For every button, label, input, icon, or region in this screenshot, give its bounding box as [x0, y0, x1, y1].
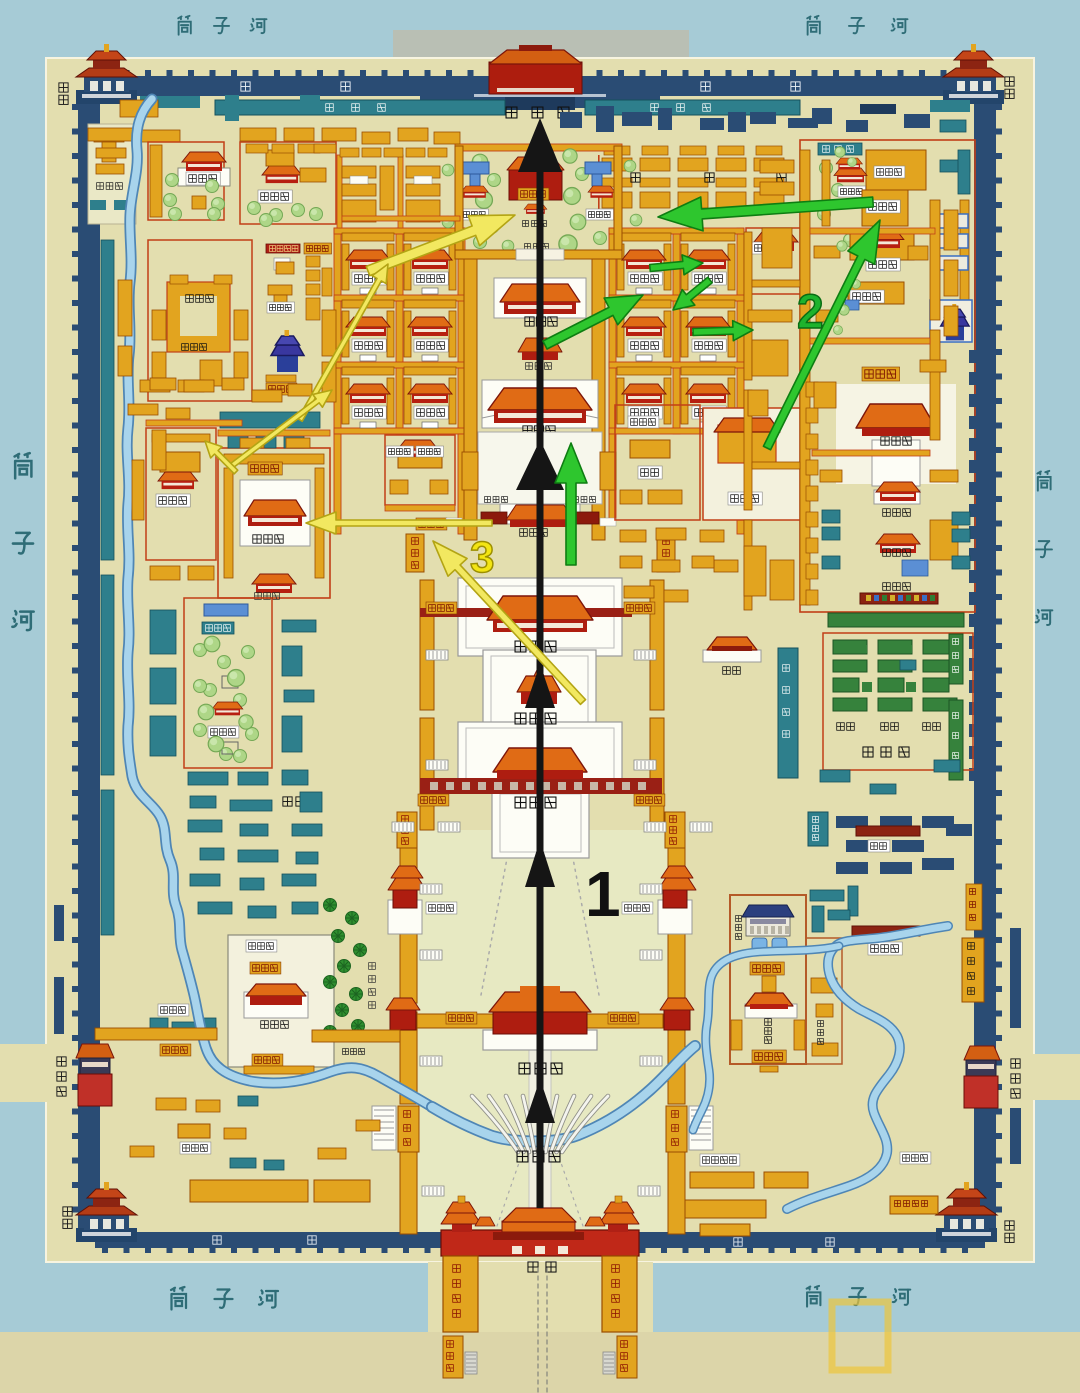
svg-text:3: 3 — [470, 533, 494, 582]
svg-text:2: 2 — [797, 286, 824, 339]
svg-text:1: 1 — [585, 858, 621, 930]
